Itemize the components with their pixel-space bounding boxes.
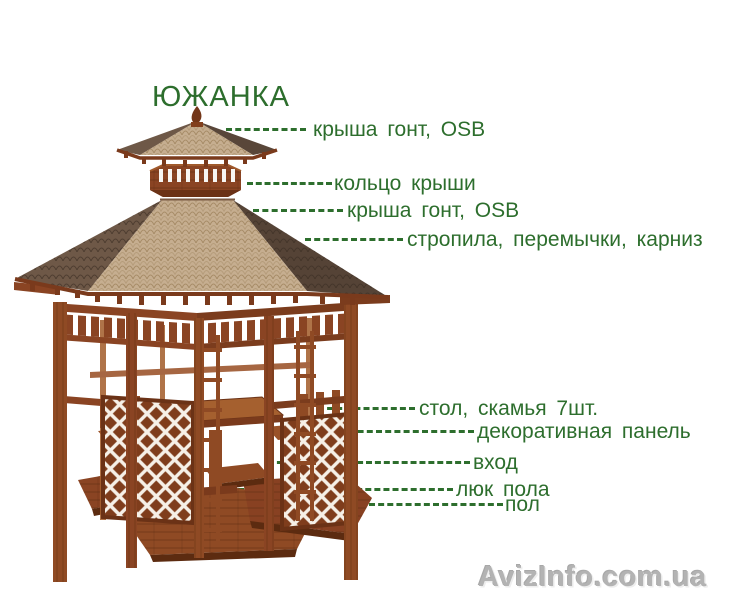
label-decor-panel: декоративная панель bbox=[477, 421, 691, 443]
label-rafters: стропила, перемычки, карниз bbox=[407, 229, 703, 251]
label-main-roof: крыша гонт, OSB bbox=[347, 200, 519, 222]
label-entrance: вход bbox=[473, 452, 518, 474]
label-layer: ЮЖАНКА крыша гонт, OSB кольцо крыши крыш… bbox=[0, 0, 750, 600]
label-roof-ring: кольцо крыши bbox=[334, 173, 476, 195]
label-floor: пол bbox=[505, 494, 540, 516]
diagram-title: ЮЖАНКА bbox=[152, 82, 290, 112]
label-cap-roof: крыша гонт, OSB bbox=[313, 119, 485, 141]
diagram-page: ЮЖАНКА крыша гонт, OSB кольцо крыши крыш… bbox=[0, 0, 750, 600]
watermark: AvizInfo.com.ua bbox=[478, 561, 707, 594]
label-table-benches: стол, скамья 7шт. bbox=[419, 398, 598, 420]
